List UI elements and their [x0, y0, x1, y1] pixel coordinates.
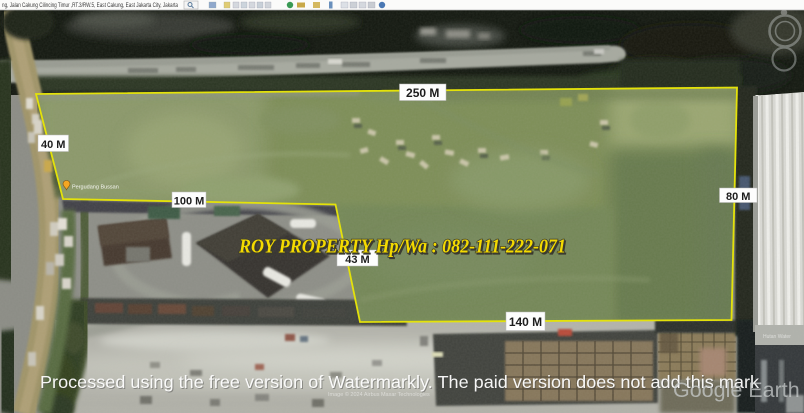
svg-text:ROY PROPERTY Hp/Wa : 082-111-2: ROY PROPERTY Hp/Wa : 082-111-222-071	[238, 236, 566, 258]
svg-text:Pergudang Bussan: Pergudang Bussan	[72, 185, 119, 191]
svg-text:80 M: 80 M	[726, 191, 750, 203]
svg-text:40 M: 40 M	[41, 139, 65, 151]
svg-text:100 M: 100 M	[174, 196, 205, 208]
svg-text:250 M: 250 M	[406, 86, 439, 100]
svg-text:Google Earth: Google Earth	[673, 378, 800, 402]
svg-text:ng, Jalan Cakung Cilincing Tim: ng, Jalan Cakung Cilincing Timur ,RT.3/R…	[2, 3, 179, 9]
svg-text:Hutan Water: Hutan Water	[763, 334, 791, 340]
svg-text:Image © 2024 Airbus Maxar Tec: Image © 2024 Airbus Maxar Technologies	[328, 391, 430, 398]
svg-text:Processed using the free versi: Processed using the free version of Wate…	[40, 372, 759, 392]
svg-text:140 M: 140 M	[509, 315, 542, 329]
